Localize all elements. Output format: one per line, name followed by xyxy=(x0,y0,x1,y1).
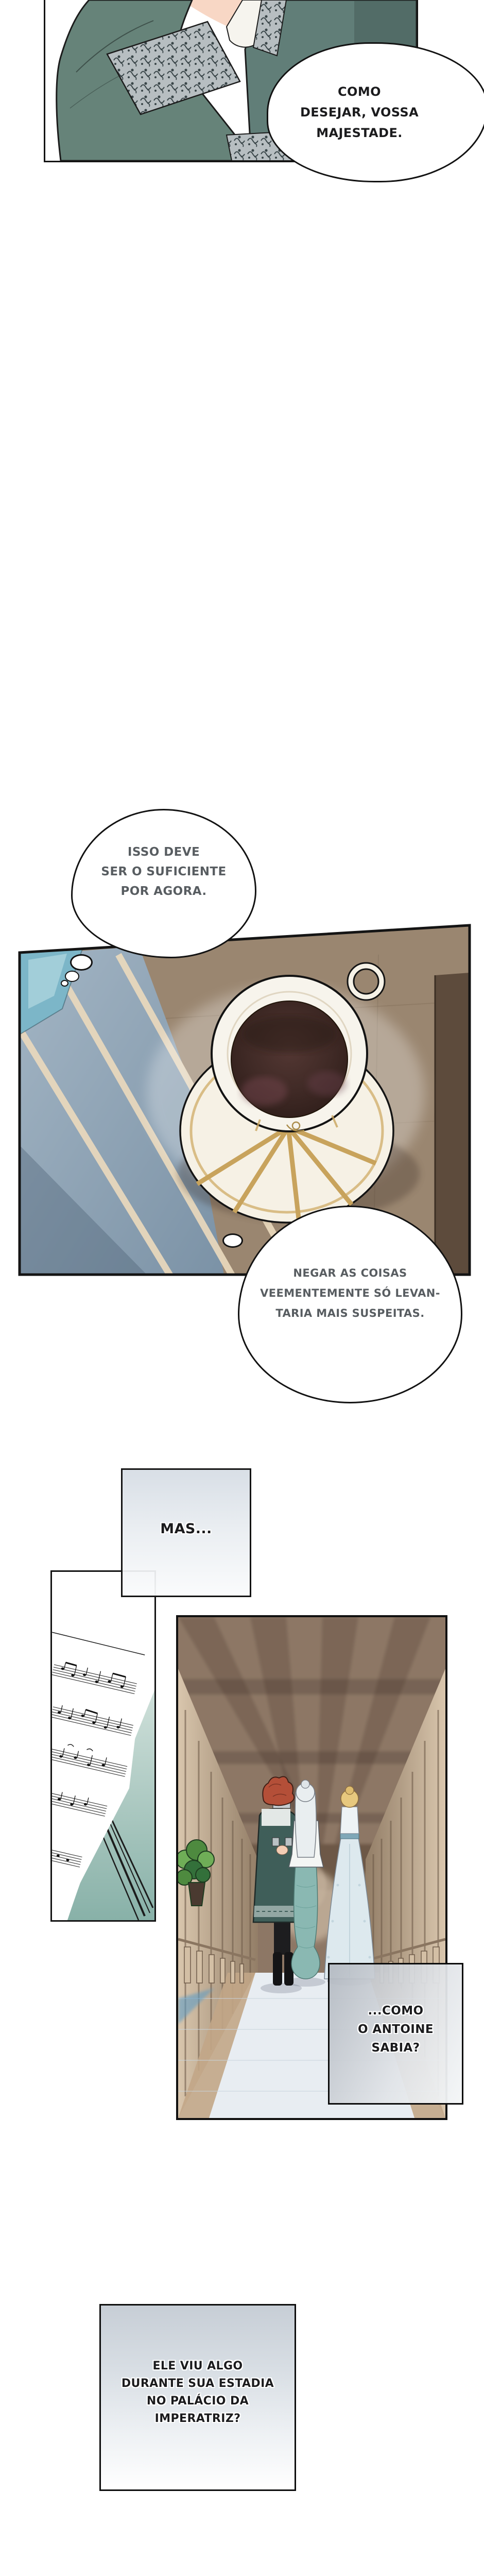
bubble-line: IMPERATRIZ? xyxy=(155,2410,241,2428)
thought-trail-dot xyxy=(70,954,93,971)
caption-box-mas: MAS... xyxy=(121,1468,251,1597)
sheet-music-illustration xyxy=(52,1572,154,1920)
bubble-line: O ANTOINE xyxy=(358,2020,434,2039)
bubble-line: DESEJAR, VOSSA xyxy=(300,102,419,123)
bubble-line: ELE VIU ALGO xyxy=(152,2358,243,2375)
bubble-line: ISSO DEVE xyxy=(128,842,200,862)
bubble-line: MAS... xyxy=(160,1521,212,1537)
bubble-line: POR AGORA. xyxy=(120,882,206,901)
bubble-line: TARIA MAIS SUSPEITAS. xyxy=(275,1303,424,1324)
thought-trail-dot xyxy=(222,1233,243,1248)
bubble-line: VEEMENTEMENTE SÓ LEVAN- xyxy=(260,1283,440,1303)
bubble-line: ...COMO xyxy=(368,2002,424,2020)
caption-box-ele-viu: ELE VIU ALGO DURANTE SUA ESTADIA NO PALÁ… xyxy=(99,2304,296,2491)
bubble-line: SABIA? xyxy=(372,2039,420,2057)
bubble-line: DURANTE SUA ESTADIA xyxy=(122,2375,274,2393)
bubble-line: COMO xyxy=(338,81,381,102)
thought-bubble-isso: ISSO DEVE SER O SUFICIENTE POR AGORA. xyxy=(71,809,256,958)
bubble-line: NEGAR AS COISAS xyxy=(293,1263,407,1283)
speech-bubble-majestade: COMO DESEJAR, VOSSA MAJESTADE. xyxy=(267,42,484,182)
panel-sheet-music xyxy=(50,1570,156,1922)
thought-trail-dot xyxy=(61,980,68,987)
caption-box-antoine-sabia: ...COMO O ANTOINE SABIA? xyxy=(328,1963,463,2105)
bubble-line: NO PALÁCIO DA xyxy=(147,2393,249,2410)
bubble-line: MAJESTADE. xyxy=(316,123,403,143)
comic-page: COMO DESEJAR, VOSSA MAJESTADE. xyxy=(0,0,484,2576)
bubble-line: SER O SUFICIENTE xyxy=(101,862,226,882)
